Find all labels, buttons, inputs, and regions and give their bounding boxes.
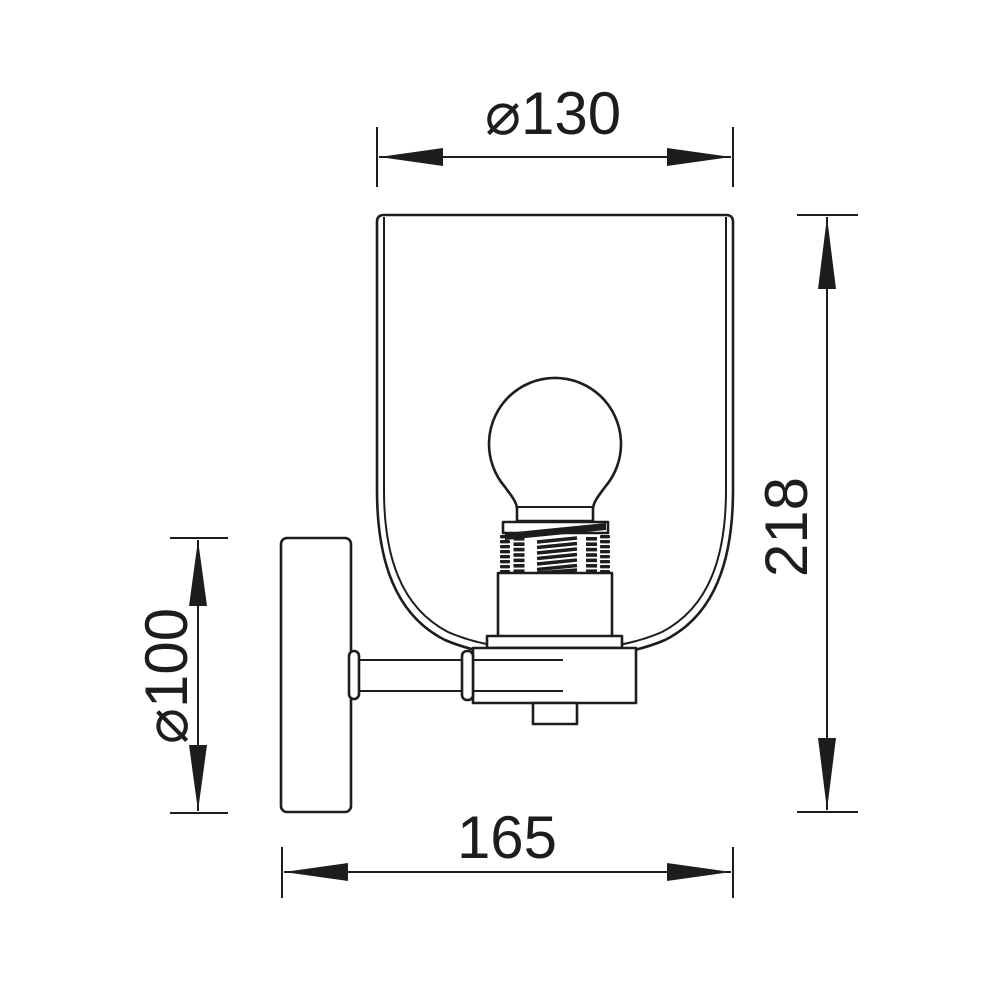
dimension-depth: 165 <box>282 804 733 898</box>
arrowhead-up <box>818 217 836 289</box>
thread-stripes-center <box>537 538 577 573</box>
arrowhead-left <box>379 148 443 166</box>
junction-box <box>533 703 577 724</box>
arrowhead-up <box>189 540 207 606</box>
arrowhead-down <box>818 738 836 810</box>
arrowhead-left <box>284 863 348 881</box>
thread-teeth-right <box>600 535 610 573</box>
arrowhead-right <box>667 863 731 881</box>
flange-upper-disc <box>487 636 622 648</box>
dimension-total-height: 218 <box>753 215 858 812</box>
arrowhead-down <box>189 745 207 811</box>
arm-collar-holder <box>462 651 473 700</box>
light-bulb <box>489 378 621 521</box>
bulb-glass <box>489 378 621 521</box>
wall-sconce-dimension-drawing: ⌀130 218 ⌀100 165 <box>0 0 1000 1000</box>
technical-drawing-canvas: ⌀130 218 ⌀100 165 <box>0 0 1000 1000</box>
dimension-label-total-height: 218 <box>753 477 820 577</box>
dimension-label-depth: 165 <box>457 804 557 871</box>
dimension-backplate-diameter: ⌀100 <box>133 538 228 813</box>
wall-plate <box>281 538 351 812</box>
dimension-label-backplate-diameter: ⌀100 <box>133 608 200 744</box>
socket-threads <box>500 535 610 573</box>
dimension-shade-diameter: ⌀130 <box>377 80 733 187</box>
arrowhead-right <box>667 148 731 166</box>
thread-column-right <box>586 537 597 573</box>
arm-collar-wall <box>349 651 359 699</box>
lamp-holder-box <box>473 648 636 703</box>
dimension-label-shade-diameter: ⌀130 <box>485 80 621 147</box>
thread-column-left <box>514 537 525 573</box>
socket-body <box>498 573 612 637</box>
thread-teeth-left <box>500 535 510 573</box>
